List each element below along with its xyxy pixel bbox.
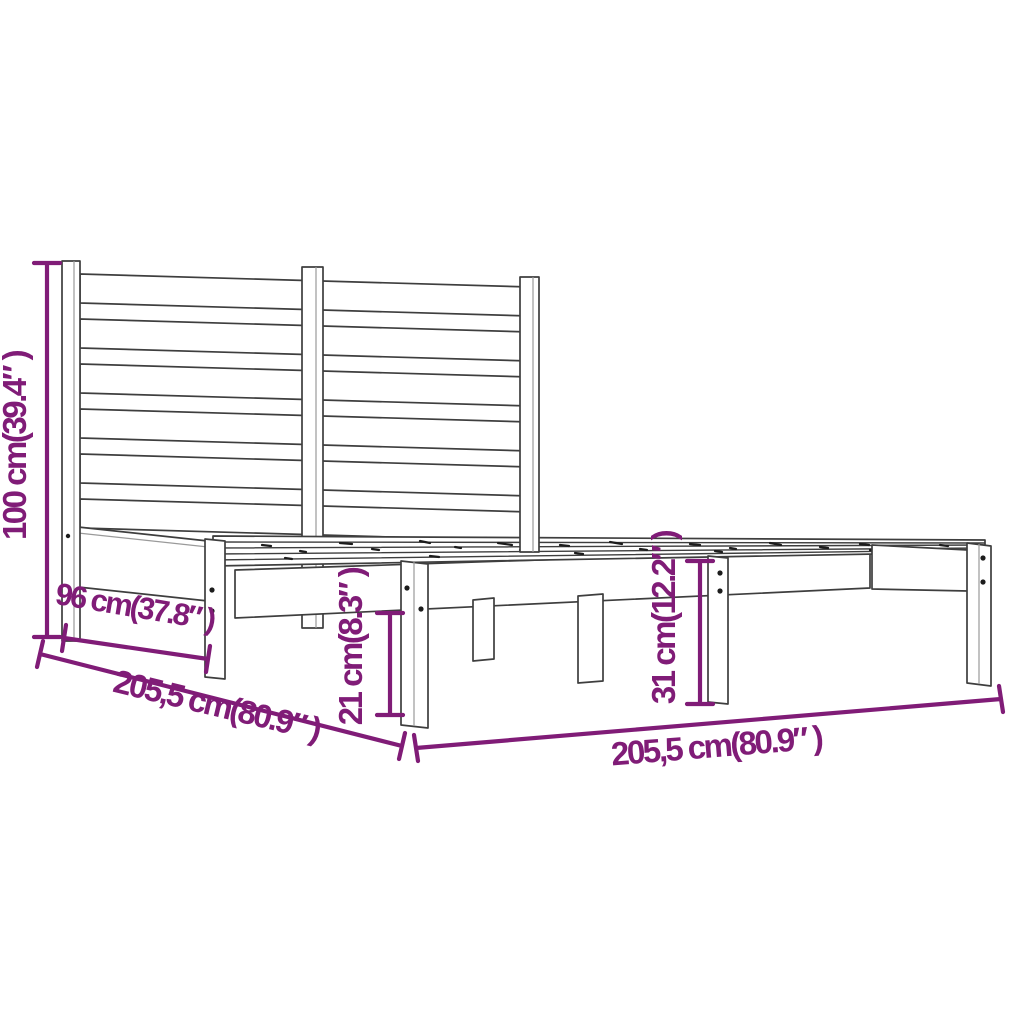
screw-hole (717, 570, 722, 575)
rear-middle-leg (708, 556, 728, 704)
dimension-label-headboard-height: 100 cm(39.4″ ) (0, 350, 33, 540)
leg (708, 556, 728, 704)
foot-corner-leg (967, 543, 991, 686)
diagram-canvas: 100 cm(39.4″ ) 96 cm(37.8″ ) 205,5 cm(80… (0, 0, 1024, 1024)
dimension-line (34, 263, 60, 637)
foot-end-rail (872, 545, 968, 591)
screw-hole (418, 606, 423, 611)
screw-hole (209, 587, 214, 592)
headboard-post-right (520, 277, 539, 552)
center-support-leg (401, 561, 428, 728)
screw-hole (980, 579, 985, 584)
screw-hole (717, 588, 722, 593)
dimension-line (377, 613, 403, 715)
dimension-label-clearance: 21 cm(8.3″ ) (332, 567, 369, 725)
bed-frame-diagram: 100 cm(39.4″ ) 96 cm(37.8″ ) 205,5 cm(80… (0, 0, 1024, 1024)
far-leg (578, 594, 603, 683)
far-leg (473, 598, 494, 661)
dimension-headboard-height: 100 cm(39.4″ ) (0, 263, 60, 637)
post (520, 277, 539, 552)
dimension-label-base-height: 31 cm(12.2″ ) (645, 530, 682, 704)
dimension-label-length-bottom: 205,5 cm(80.9″ ) (610, 719, 824, 773)
screw-hole (404, 585, 409, 590)
screw-hole (66, 534, 70, 538)
screw-hole (980, 555, 985, 560)
